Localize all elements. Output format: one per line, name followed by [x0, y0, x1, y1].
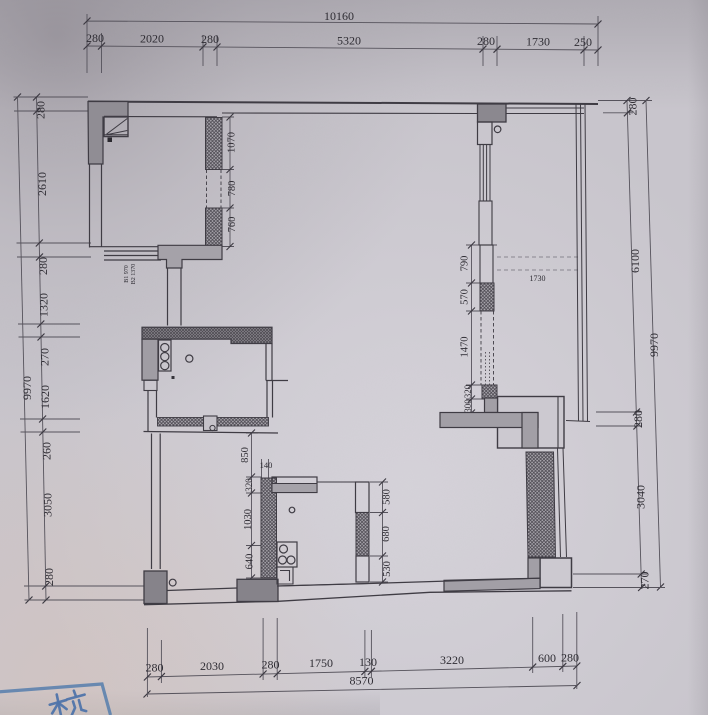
svg-text:280: 280 — [42, 568, 56, 586]
svg-text:250: 250 — [574, 35, 592, 49]
svg-text:1730: 1730 — [526, 35, 550, 49]
svg-text:280: 280 — [631, 410, 645, 428]
svg-text:600: 600 — [538, 651, 556, 665]
svg-text:850: 850 — [240, 447, 251, 463]
svg-text:9970: 9970 — [20, 376, 34, 400]
svg-text:6100: 6100 — [628, 249, 642, 273]
svg-text:1070: 1070 — [227, 132, 238, 153]
svg-text:B1 970: B1 970 — [124, 265, 130, 283]
svg-text:280: 280 — [477, 34, 495, 48]
svg-text:640: 640 — [245, 554, 256, 570]
svg-text:1030: 1030 — [243, 509, 254, 530]
svg-text:2020: 2020 — [140, 32, 164, 46]
svg-text:3040: 3040 — [634, 485, 648, 509]
svg-text:280: 280 — [36, 257, 50, 275]
svg-text:570: 570 — [460, 289, 471, 305]
svg-text:280: 280 — [86, 31, 104, 45]
svg-text:280: 280 — [146, 661, 164, 675]
svg-text:580: 580 — [382, 489, 393, 505]
svg-text:680: 680 — [381, 526, 392, 542]
svg-text:2610: 2610 — [35, 172, 49, 196]
svg-text:1470: 1470 — [460, 337, 471, 358]
svg-text:280: 280 — [201, 32, 219, 46]
svg-text:280: 280 — [34, 101, 48, 119]
svg-text:140: 140 — [260, 460, 273, 470]
svg-text:3050: 3050 — [41, 493, 55, 517]
svg-text:790: 790 — [460, 256, 471, 272]
svg-text:320: 320 — [244, 478, 254, 492]
svg-text:1730: 1730 — [530, 274, 546, 283]
svg-text:B2 1370: B2 1370 — [131, 264, 137, 285]
svg-text:300: 300 — [463, 399, 473, 413]
svg-text:1620: 1620 — [38, 385, 52, 409]
svg-text:280: 280 — [561, 651, 579, 665]
svg-text:260: 260 — [40, 442, 54, 460]
svg-text:10160: 10160 — [324, 9, 354, 23]
svg-text:1750: 1750 — [309, 656, 333, 670]
svg-text:780: 780 — [227, 181, 238, 197]
svg-text:280: 280 — [262, 657, 280, 671]
svg-text:8570: 8570 — [350, 674, 374, 688]
svg-text:5320: 5320 — [337, 34, 361, 48]
svg-text:2030: 2030 — [200, 659, 224, 673]
svg-text:3220: 3220 — [440, 653, 464, 667]
svg-text:530: 530 — [382, 561, 393, 577]
svg-text:320: 320 — [463, 384, 473, 398]
svg-text:280: 280 — [626, 98, 640, 116]
svg-text:9970: 9970 — [647, 333, 661, 357]
svg-text:1320: 1320 — [37, 293, 51, 317]
svg-text:270: 270 — [638, 572, 652, 590]
svg-text:760: 760 — [227, 217, 238, 233]
svg-text:270: 270 — [38, 348, 52, 366]
svg-text:130: 130 — [359, 655, 377, 669]
